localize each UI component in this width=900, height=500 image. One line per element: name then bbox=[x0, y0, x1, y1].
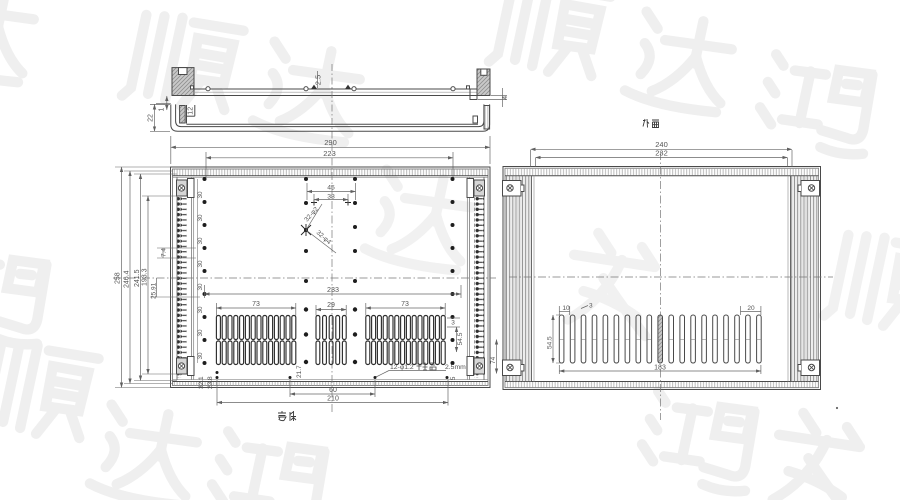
svg-text:21.7: 21.7 bbox=[296, 365, 303, 378]
svg-text:30: 30 bbox=[197, 352, 204, 360]
svg-text:30: 30 bbox=[197, 214, 204, 222]
svg-text:30: 30 bbox=[197, 260, 204, 268]
svg-text:32.1: 32.1 bbox=[198, 376, 205, 389]
svg-text:210: 210 bbox=[327, 395, 339, 402]
svg-text:38: 38 bbox=[327, 193, 335, 200]
svg-text:12-φ1.2: 12-φ1.2 bbox=[390, 364, 414, 371]
svg-text:223: 223 bbox=[323, 149, 336, 158]
svg-text:5: 5 bbox=[451, 376, 457, 380]
svg-text:30: 30 bbox=[197, 283, 204, 291]
svg-text:241.5: 241.5 bbox=[134, 269, 141, 287]
svg-text:10: 10 bbox=[562, 305, 570, 312]
svg-text:74: 74 bbox=[490, 356, 497, 364]
svg-text:54.5: 54.5 bbox=[547, 336, 554, 349]
svg-text:25.91: 25.91 bbox=[151, 282, 158, 299]
svg-text:30: 30 bbox=[197, 237, 204, 245]
svg-text:290: 290 bbox=[324, 138, 337, 147]
svg-text:12: 12 bbox=[187, 107, 194, 115]
svg-text:183: 183 bbox=[654, 364, 666, 371]
svg-text:7.4: 7.4 bbox=[161, 248, 168, 257]
svg-text:30: 30 bbox=[197, 329, 204, 337]
svg-text:3: 3 bbox=[451, 320, 455, 327]
svg-text:258: 258 bbox=[115, 272, 122, 284]
svg-text:30: 30 bbox=[197, 306, 204, 314]
svg-text:30: 30 bbox=[197, 191, 204, 199]
svg-text:1: 1 bbox=[159, 107, 166, 111]
svg-text:23.8: 23.8 bbox=[207, 376, 214, 389]
svg-text:232: 232 bbox=[655, 148, 668, 157]
svg-text:60: 60 bbox=[329, 387, 337, 394]
svg-text:4: 4 bbox=[502, 96, 509, 100]
svg-text:2.5mm: 2.5mm bbox=[445, 364, 466, 371]
svg-text:246.4: 246.4 bbox=[124, 270, 131, 288]
svg-text:54.5: 54.5 bbox=[457, 332, 464, 345]
svg-text:73: 73 bbox=[401, 301, 409, 308]
svg-text:20: 20 bbox=[747, 305, 755, 312]
svg-text:2.5: 2.5 bbox=[314, 75, 323, 85]
svg-text:22: 22 bbox=[148, 114, 155, 122]
svg-text:45: 45 bbox=[327, 185, 335, 192]
svg-text:193.3: 193.3 bbox=[142, 268, 149, 286]
svg-text:73: 73 bbox=[252, 301, 260, 308]
svg-text:233: 233 bbox=[327, 285, 339, 294]
svg-text:29: 29 bbox=[327, 302, 335, 309]
svg-text:3: 3 bbox=[589, 303, 593, 310]
